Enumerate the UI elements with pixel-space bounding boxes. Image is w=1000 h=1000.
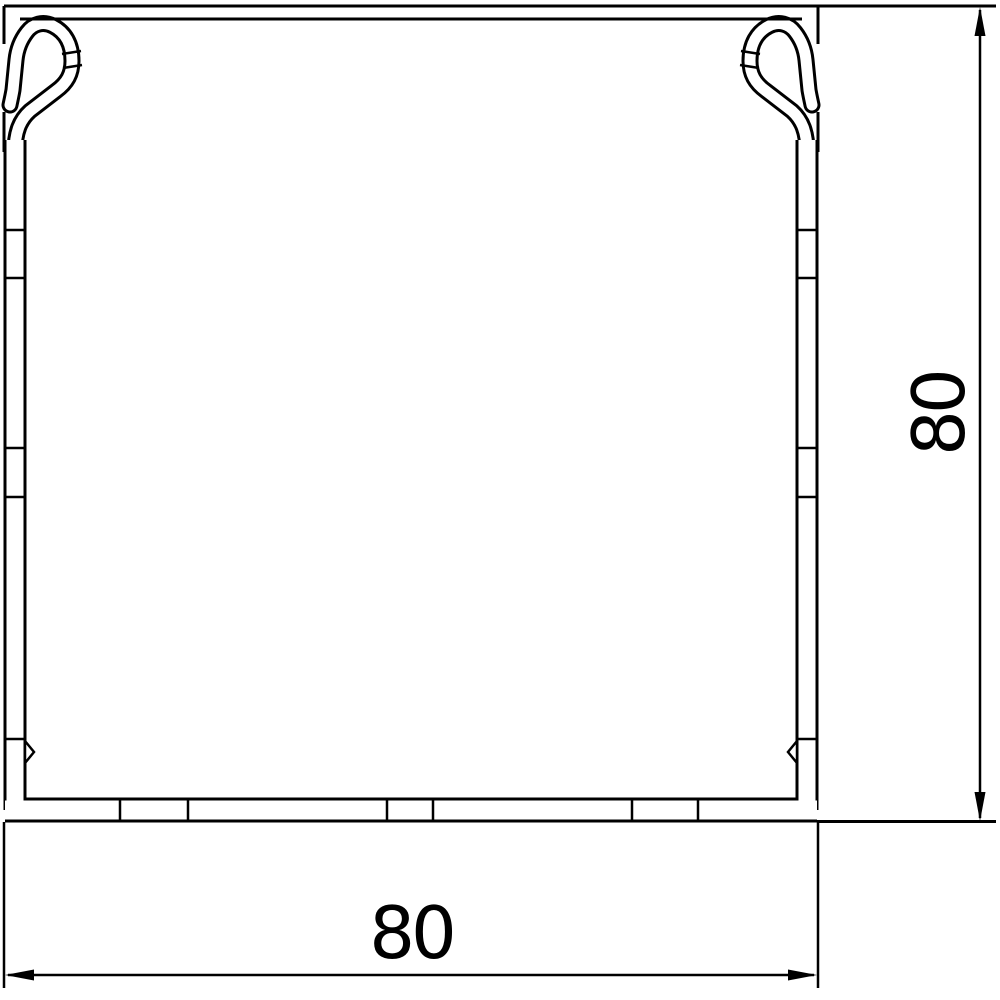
trunking-cross-section-drawing: 80 80 <box>0 0 1000 1000</box>
width-dimension-label: 80 <box>369 891 453 975</box>
arrow-left-icon <box>5 970 34 981</box>
right-foot-notch <box>788 741 797 763</box>
cover-plate <box>4 6 996 152</box>
arrow-down-icon <box>975 792 986 821</box>
arrow-right-icon <box>788 970 817 981</box>
profile-outline <box>5 24 817 810</box>
segment-marks <box>4 51 818 822</box>
left-foot-notch <box>25 741 34 763</box>
technical-drawing-page: 80 80 <box>0 0 1000 1000</box>
foot-notches <box>25 741 797 763</box>
arrow-up-icon <box>975 7 986 36</box>
height-dimension: 80 <box>817 7 996 822</box>
width-dimension: 80 <box>4 822 818 988</box>
height-dimension-label: 80 <box>897 372 981 456</box>
